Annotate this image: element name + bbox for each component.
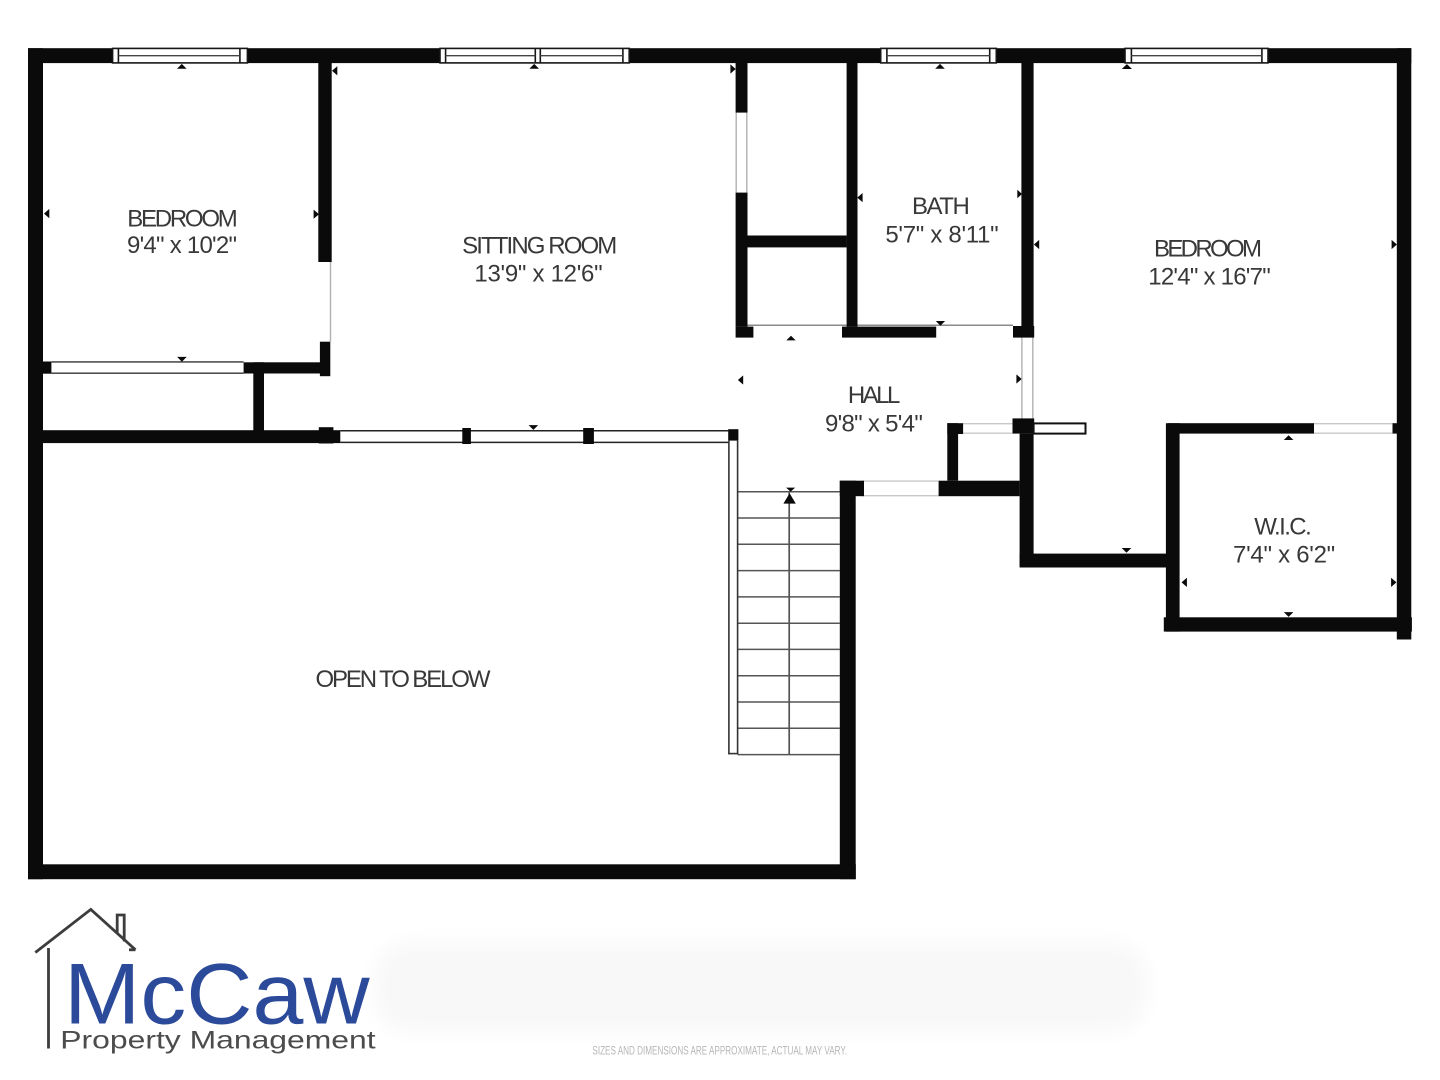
svg-text:BEDROOM: BEDROOM	[127, 205, 238, 232]
svg-text:W.I.C.: W.I.C.	[1254, 513, 1312, 540]
svg-text:13'9" x 12'6": 13'9" x 12'6"	[474, 261, 602, 288]
svg-text:BEDROOM: BEDROOM	[1154, 236, 1262, 263]
svg-text:SITTING ROOM: SITTING ROOM	[462, 232, 617, 259]
svg-text:OPEN TO BELOW: OPEN TO BELOW	[316, 666, 491, 693]
svg-text:12'4" x 16'7": 12'4" x 16'7"	[1148, 264, 1271, 291]
svg-text:SIZES AND DIMENSIONS ARE APPRO: SIZES AND DIMENSIONS ARE APPROXIMATE, AC…	[592, 1046, 847, 1058]
svg-text:9'8" x 5'4": 9'8" x 5'4"	[825, 411, 923, 438]
svg-text:BATH: BATH	[912, 193, 970, 220]
svg-text:7'4" x 6'2": 7'4" x 6'2"	[1233, 542, 1335, 569]
svg-text:HALL: HALL	[848, 382, 900, 409]
svg-text:9'4" x 10'2": 9'4" x 10'2"	[127, 232, 237, 259]
svg-text:5'7" x 8'11": 5'7" x 8'11"	[885, 222, 998, 249]
svg-text:Property Management: Property Management	[60, 1026, 375, 1054]
